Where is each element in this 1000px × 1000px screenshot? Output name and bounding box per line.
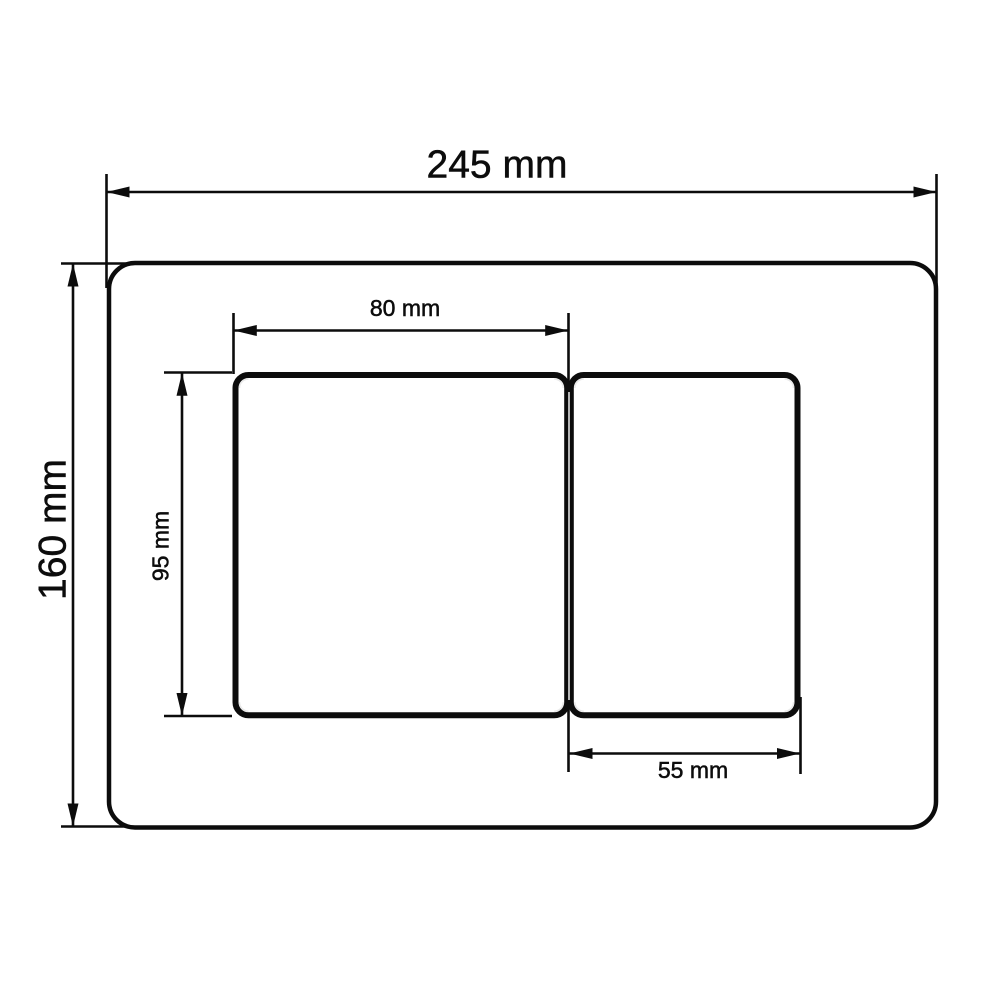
svg-text:55 mm: 55 mm xyxy=(658,757,728,783)
svg-text:95 mm: 95 mm xyxy=(148,511,174,581)
svg-text:80 mm: 80 mm xyxy=(370,295,440,321)
svg-text:160 mm: 160 mm xyxy=(32,459,75,600)
svg-text:245 mm: 245 mm xyxy=(427,144,568,187)
